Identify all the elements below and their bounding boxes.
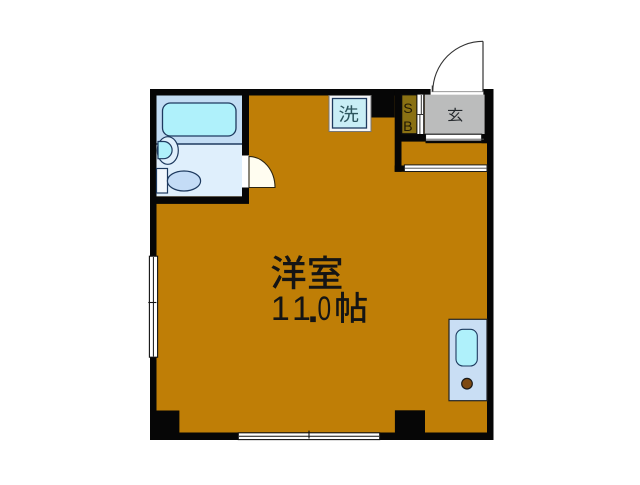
- svg-text:S: S: [403, 101, 412, 117]
- svg-text:0: 0: [318, 290, 332, 328]
- svg-text:B: B: [403, 119, 412, 135]
